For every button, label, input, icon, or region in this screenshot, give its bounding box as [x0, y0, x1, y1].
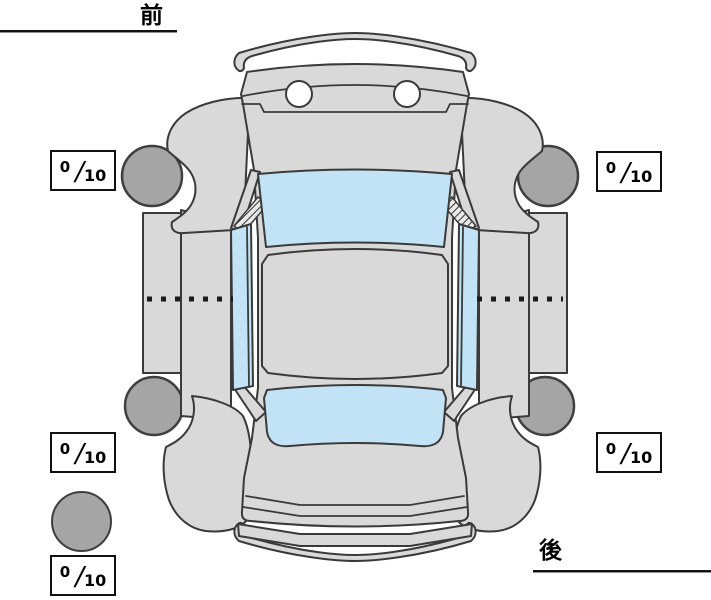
rating-separator: /: [75, 439, 84, 469]
right-door-window: [457, 224, 479, 390]
rating-max: 10: [84, 166, 106, 185]
rear-left-tire: [125, 377, 183, 435]
rating-separator: /: [621, 439, 630, 469]
rating-value: 0: [60, 158, 70, 176]
rating-separator: /: [75, 562, 84, 592]
roof: [262, 249, 448, 379]
tire-rating-rear-right: 0 / 10: [596, 432, 662, 473]
rating-separator: /: [621, 158, 630, 188]
tire-rating-spare: 0 / 10: [50, 555, 116, 596]
rating-max: 10: [630, 448, 652, 467]
rating-max: 10: [630, 167, 652, 186]
windshield: [258, 170, 452, 248]
tire-rating-rear-left: 0 / 10: [50, 432, 116, 473]
rating-separator: /: [75, 157, 84, 187]
right-door-outer-sill: [529, 213, 567, 373]
left-door-panel: [181, 210, 231, 420]
rating-max: 10: [84, 571, 106, 590]
rating-value: 0: [60, 563, 70, 581]
left-door-outer-sill: [143, 213, 181, 373]
tire-rating-front-left: 0 / 10: [50, 150, 116, 191]
rating-value: 0: [606, 440, 616, 458]
left-headlamp-washer-icon: [286, 81, 312, 107]
rating-value: 0: [60, 440, 70, 458]
vehicle-condition-diagram: 前 後: [0, 0, 711, 600]
tire-rating-front-right: 0 / 10: [596, 151, 662, 192]
rating-value: 0: [606, 159, 616, 177]
right-headlamp-washer-icon: [394, 81, 420, 107]
rear-window: [264, 385, 446, 446]
spare-tire: [51, 491, 112, 552]
right-door-panel: [479, 210, 529, 420]
left-door-window: [231, 224, 253, 390]
rating-max: 10: [84, 448, 106, 467]
